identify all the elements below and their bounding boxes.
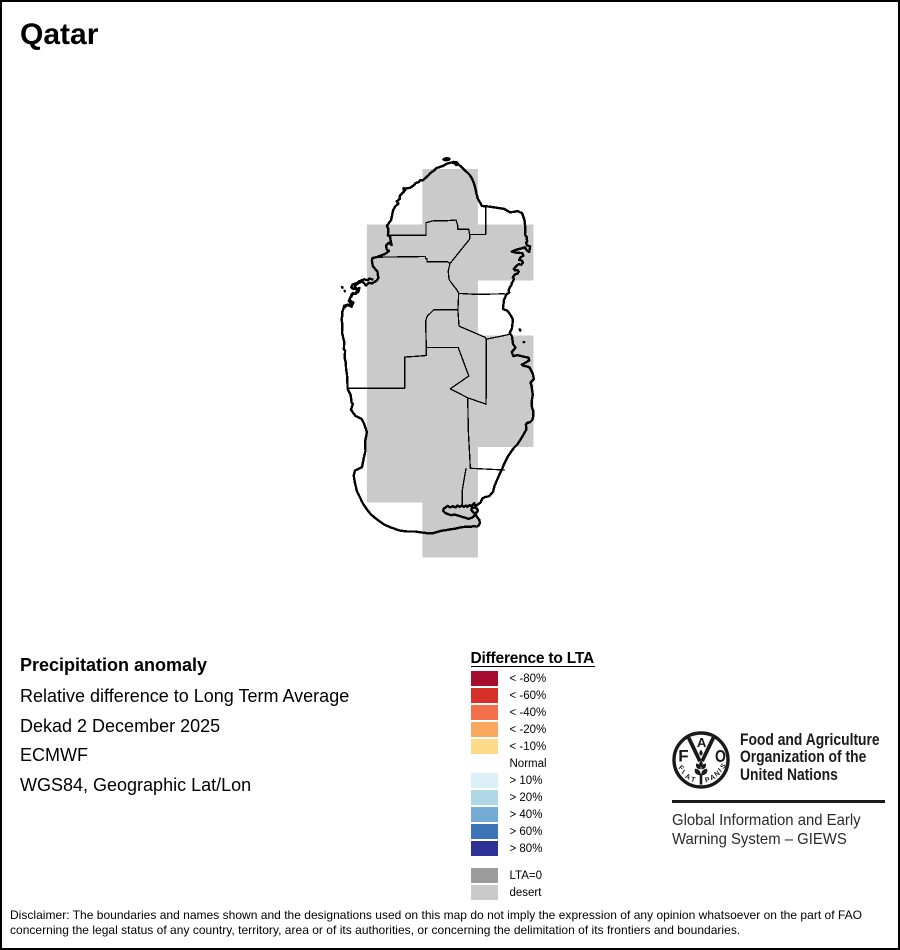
svg-text:F: F	[678, 746, 688, 765]
